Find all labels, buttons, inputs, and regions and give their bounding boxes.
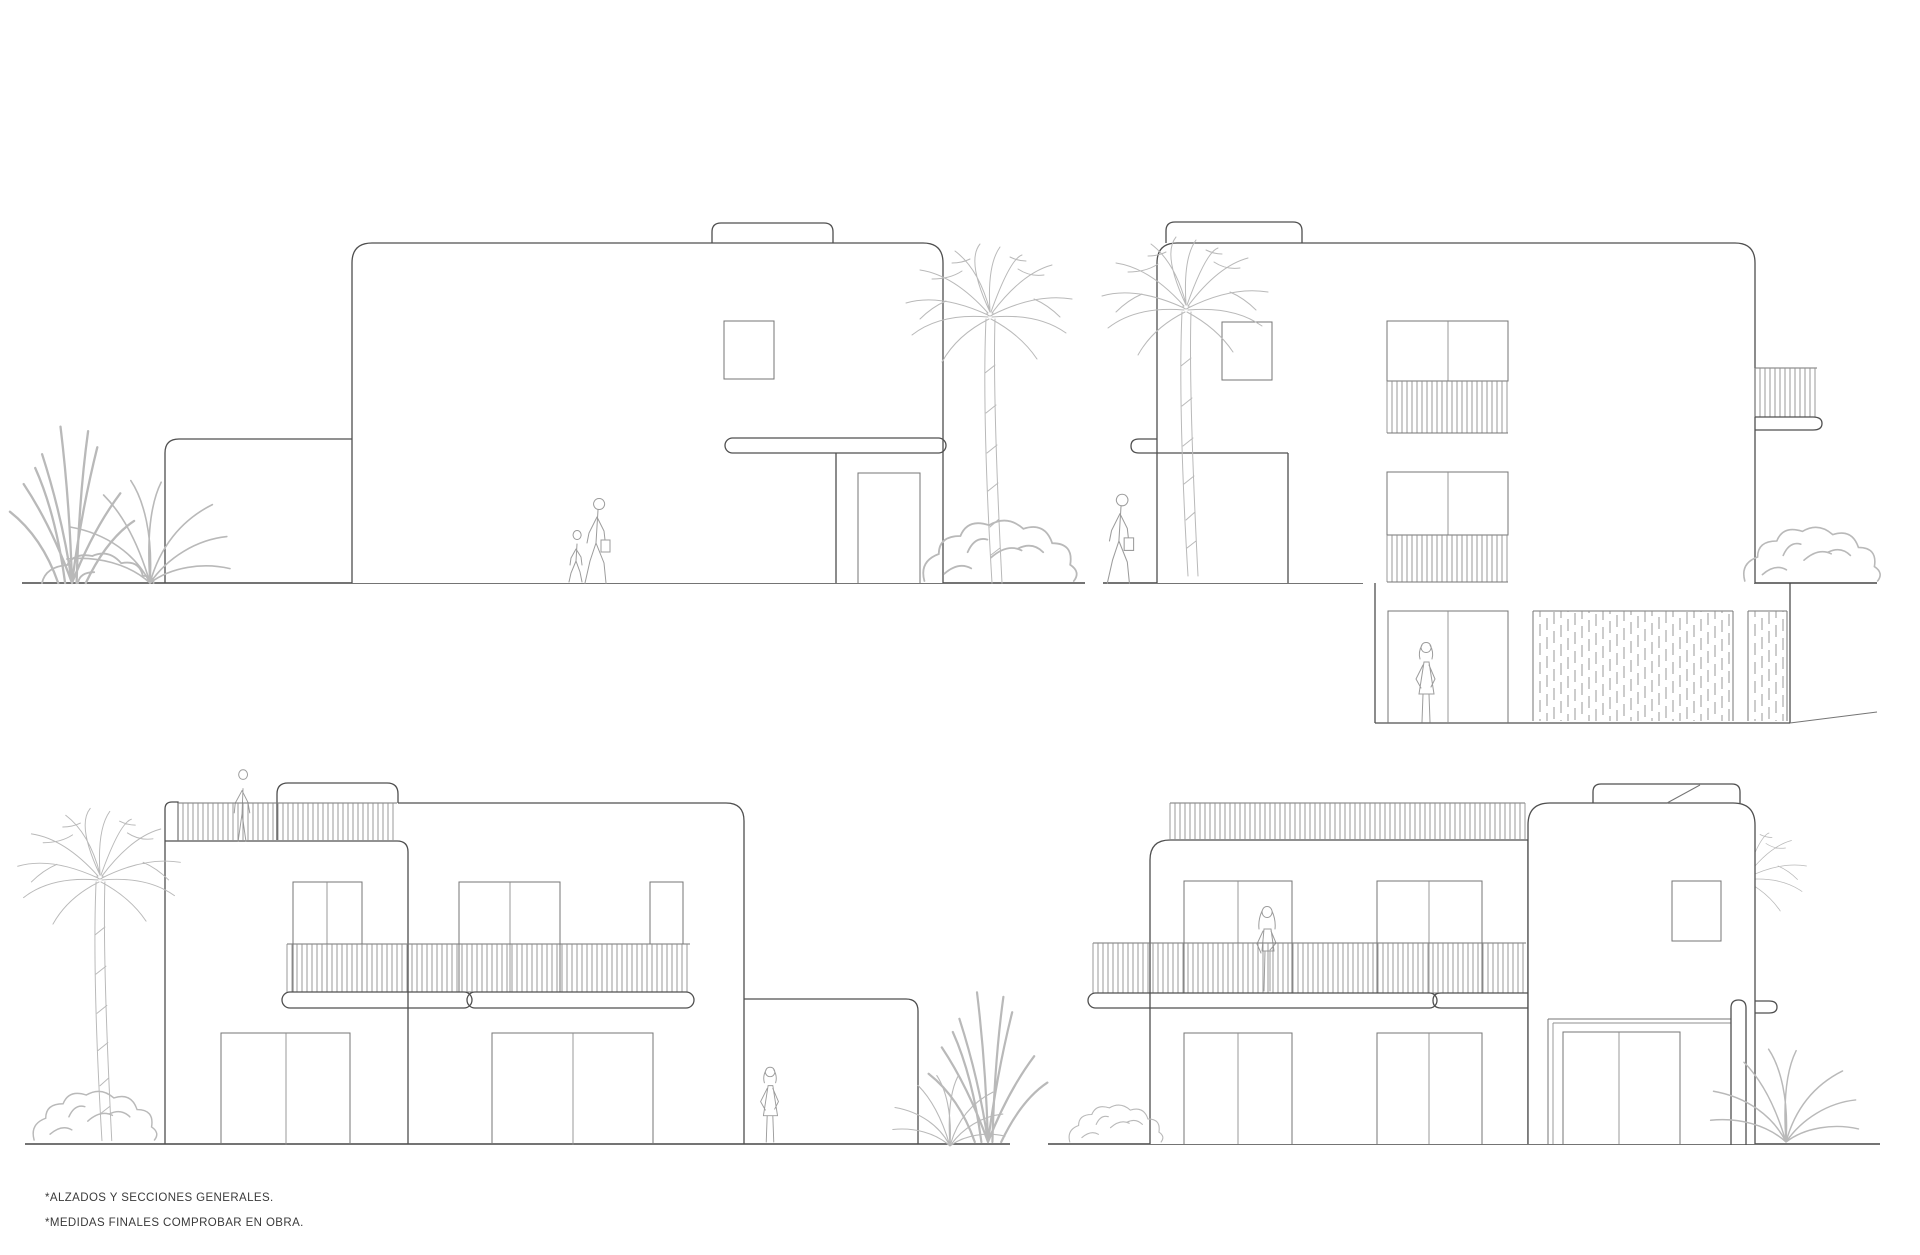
stair-bulkhead (277, 783, 398, 840)
main-volume (1157, 243, 1755, 583)
bush (923, 521, 1076, 581)
elevation-bottom-left (18, 770, 1048, 1146)
roof-parapet (1166, 222, 1302, 243)
side-ledge (1131, 439, 1157, 453)
bush (33, 1091, 157, 1140)
side-balcony-slab (1755, 417, 1822, 430)
left-volume-edge (165, 802, 178, 1144)
figure-walking (1107, 494, 1133, 583)
glass-door (492, 1033, 653, 1145)
main-volume (352, 243, 943, 583)
roof-terrace-railing (1170, 803, 1525, 840)
elevation-bottom-right (1048, 784, 1880, 1145)
leaf-plant (67, 481, 230, 583)
roof-parapet (712, 223, 833, 243)
balcony-slab (467, 992, 694, 1008)
bush (1744, 527, 1880, 581)
main-volume (1150, 840, 1528, 1144)
drawing-sheet: *ALZADOS Y SECCIONES GENERALES. *MEDIDAS… (0, 0, 1920, 1255)
figure-basement (1416, 643, 1435, 722)
elevation-top-left (10, 223, 1085, 583)
notes: *ALZADOS Y SECCIONES GENERALES. *MEDIDAS… (45, 1186, 304, 1235)
tower-parapet (1593, 784, 1740, 803)
terrain-slope (1790, 712, 1877, 723)
side-balcony-railing (1755, 368, 1817, 417)
bush (1069, 1105, 1163, 1142)
annex-wall (165, 439, 352, 583)
figure-roof (234, 770, 250, 841)
rocks (42, 554, 154, 583)
window-door (459, 882, 560, 992)
balcony-railing (287, 944, 690, 992)
right-volume (398, 803, 744, 1144)
note-line-2: *MEDIDAS FINALES COMPROBAR EN OBRA. (45, 1211, 304, 1236)
window-small (650, 882, 683, 944)
grass-plant (929, 992, 1048, 1142)
balcony-slab (282, 992, 472, 1008)
elevations-drawing (0, 0, 1920, 1255)
slat-screen-small (1748, 611, 1783, 721)
figure-standing (761, 1067, 779, 1142)
slat-screen (1533, 611, 1729, 721)
note-line-1: *ALZADOS Y SECCIONES GENERALES. (45, 1186, 304, 1211)
side-bracket (1755, 1001, 1777, 1013)
roof-terrace-railing (178, 803, 397, 841)
parapet-diagonal (1667, 785, 1700, 803)
elevation-top-right (1102, 222, 1880, 723)
glass-door (221, 1033, 350, 1145)
annex-corner (906, 999, 918, 1144)
